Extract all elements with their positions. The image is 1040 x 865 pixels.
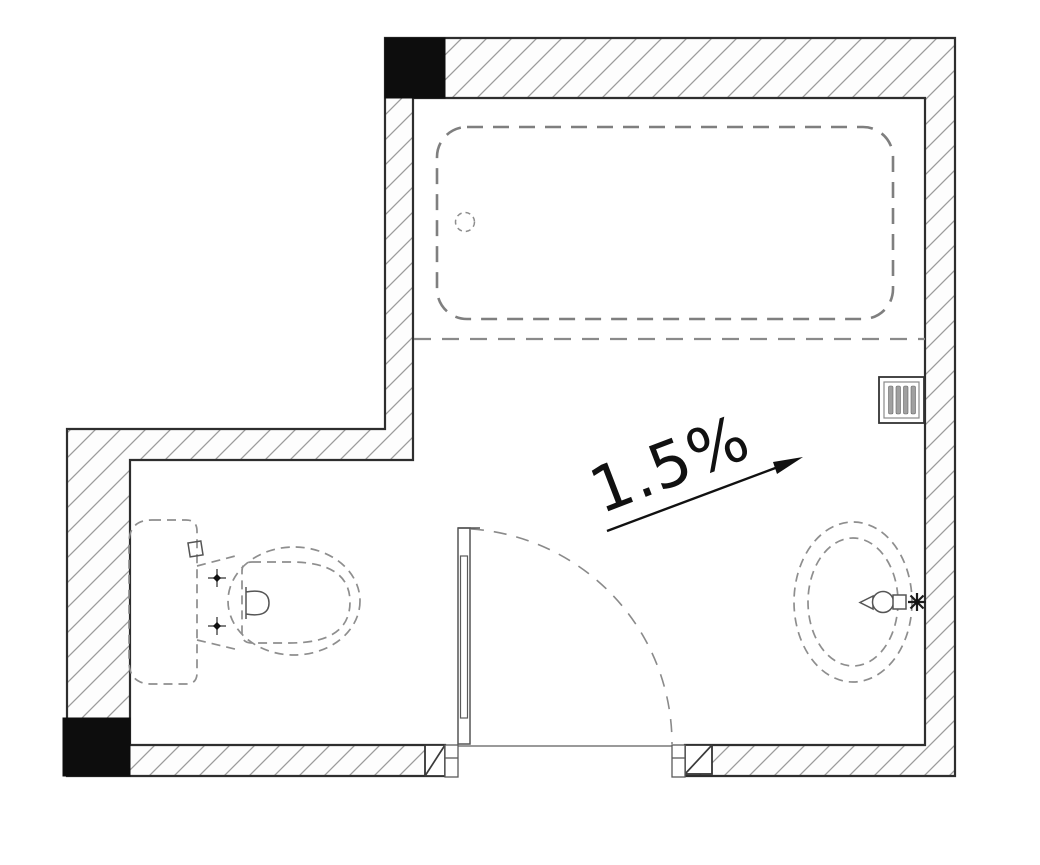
toilet-bowl-inner [242, 562, 350, 643]
door-swing-arc [471, 529, 672, 744]
grille-bar [904, 386, 909, 414]
jamb-profile [445, 745, 458, 777]
faucet-stem [893, 595, 906, 609]
wash-basin-icon [794, 522, 926, 682]
grille-bar [889, 386, 894, 414]
vent-grille-icon [879, 377, 924, 423]
door-jamb-right [672, 745, 712, 777]
floor-plan-canvas: 1.5% [0, 0, 1040, 865]
bathroom-floor-plan: 1.5% [0, 0, 1040, 865]
structural-column-icon [63, 718, 130, 776]
flush-outlet [246, 587, 269, 619]
grille-bar [896, 386, 901, 414]
bathtub-drain-icon [456, 213, 475, 232]
toilet-bowl-outer [228, 547, 360, 655]
toilet-seat-joint [197, 555, 239, 650]
slope-label: 1.5% [580, 401, 759, 528]
faucet-body [873, 592, 894, 613]
door-jamb-left [425, 745, 458, 777]
grille-bar [911, 386, 916, 414]
bathtub-outline [437, 127, 893, 319]
door-leaf [458, 528, 470, 744]
flush-button [188, 541, 203, 557]
slope-annotation: 1.5% [580, 401, 803, 531]
bolt-cross-icon [208, 569, 226, 587]
faucet-spout [860, 596, 873, 609]
bolt-cross-icon [208, 617, 226, 635]
toilet-cistern [129, 520, 197, 684]
toilet-icon [129, 520, 360, 684]
faucet-icon [860, 592, 926, 613]
structural-column-icon [385, 38, 445, 98]
bathtub-icon [437, 127, 893, 319]
wall-outline [67, 38, 955, 776]
slope-arrowhead [773, 457, 803, 474]
jamb-profile [672, 745, 685, 777]
faucet-handle-center [915, 600, 920, 605]
door-icon [458, 528, 672, 744]
